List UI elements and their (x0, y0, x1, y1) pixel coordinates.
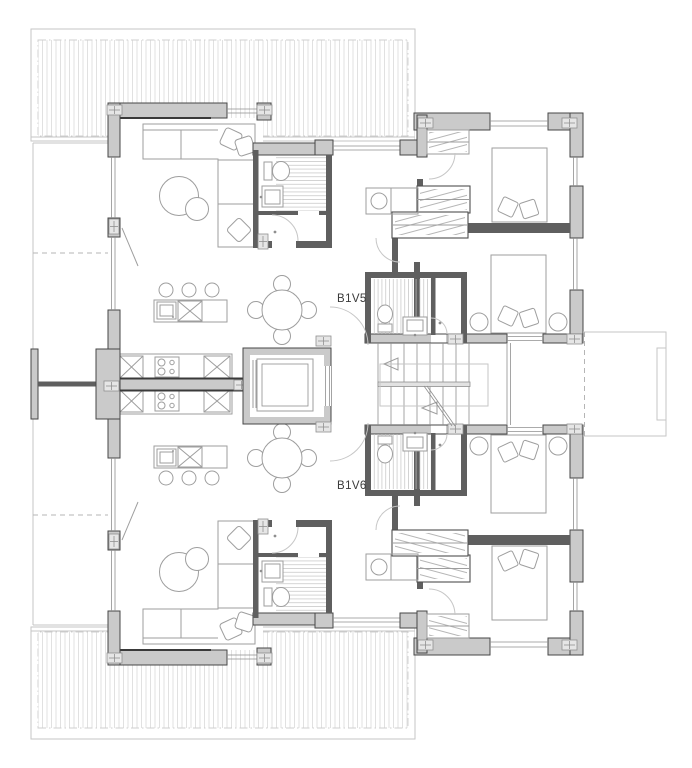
wardrobe-icon (427, 130, 469, 154)
floor-plan-svg: B1V5 B1V6 (0, 0, 692, 768)
hall-window (333, 146, 400, 150)
terrace-side-left (33, 143, 108, 384)
staircase (378, 343, 511, 426)
sink-icon (260, 186, 283, 207)
bedside-table-icon (470, 313, 488, 331)
toilet-icon (378, 305, 393, 332)
bed-icon (491, 255, 546, 333)
door-handle-icon (439, 322, 442, 325)
wardrobe-icon (392, 212, 468, 238)
stair-direction-arrow-icon (422, 402, 437, 414)
wardrobe-icon (417, 186, 470, 213)
unit-b1v6 (31, 384, 583, 739)
bed-icon (492, 148, 547, 222)
unit-label-b1v5: B1V5 (337, 293, 367, 305)
door-handle-icon (274, 231, 277, 234)
sink-icon (403, 317, 427, 336)
access-bridge (583, 332, 666, 436)
floor-plan: B1V5 B1V6 (0, 0, 692, 768)
bedside-table-icon (549, 313, 567, 331)
unit-b1v5 (31, 29, 583, 384)
unit-label-b1v6: B1V6 (337, 480, 367, 492)
elevator (243, 336, 331, 432)
toilet-icon (264, 162, 290, 181)
